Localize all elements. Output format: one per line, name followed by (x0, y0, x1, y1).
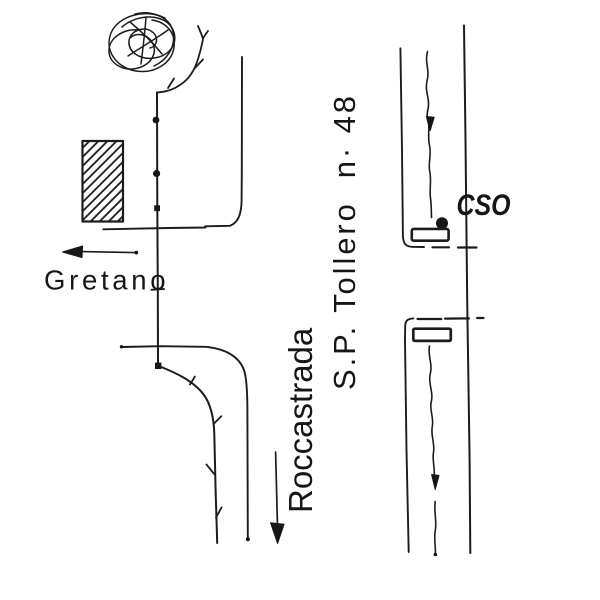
svg-text:Gretano: Gretano (44, 265, 169, 296)
svg-text:S.P. Tollero n· 48: S.P. Tollero n· 48 (327, 93, 362, 390)
svg-text:Roccastrada: Roccastrada (282, 327, 319, 513)
svg-text:CSO: CSO (457, 189, 511, 222)
